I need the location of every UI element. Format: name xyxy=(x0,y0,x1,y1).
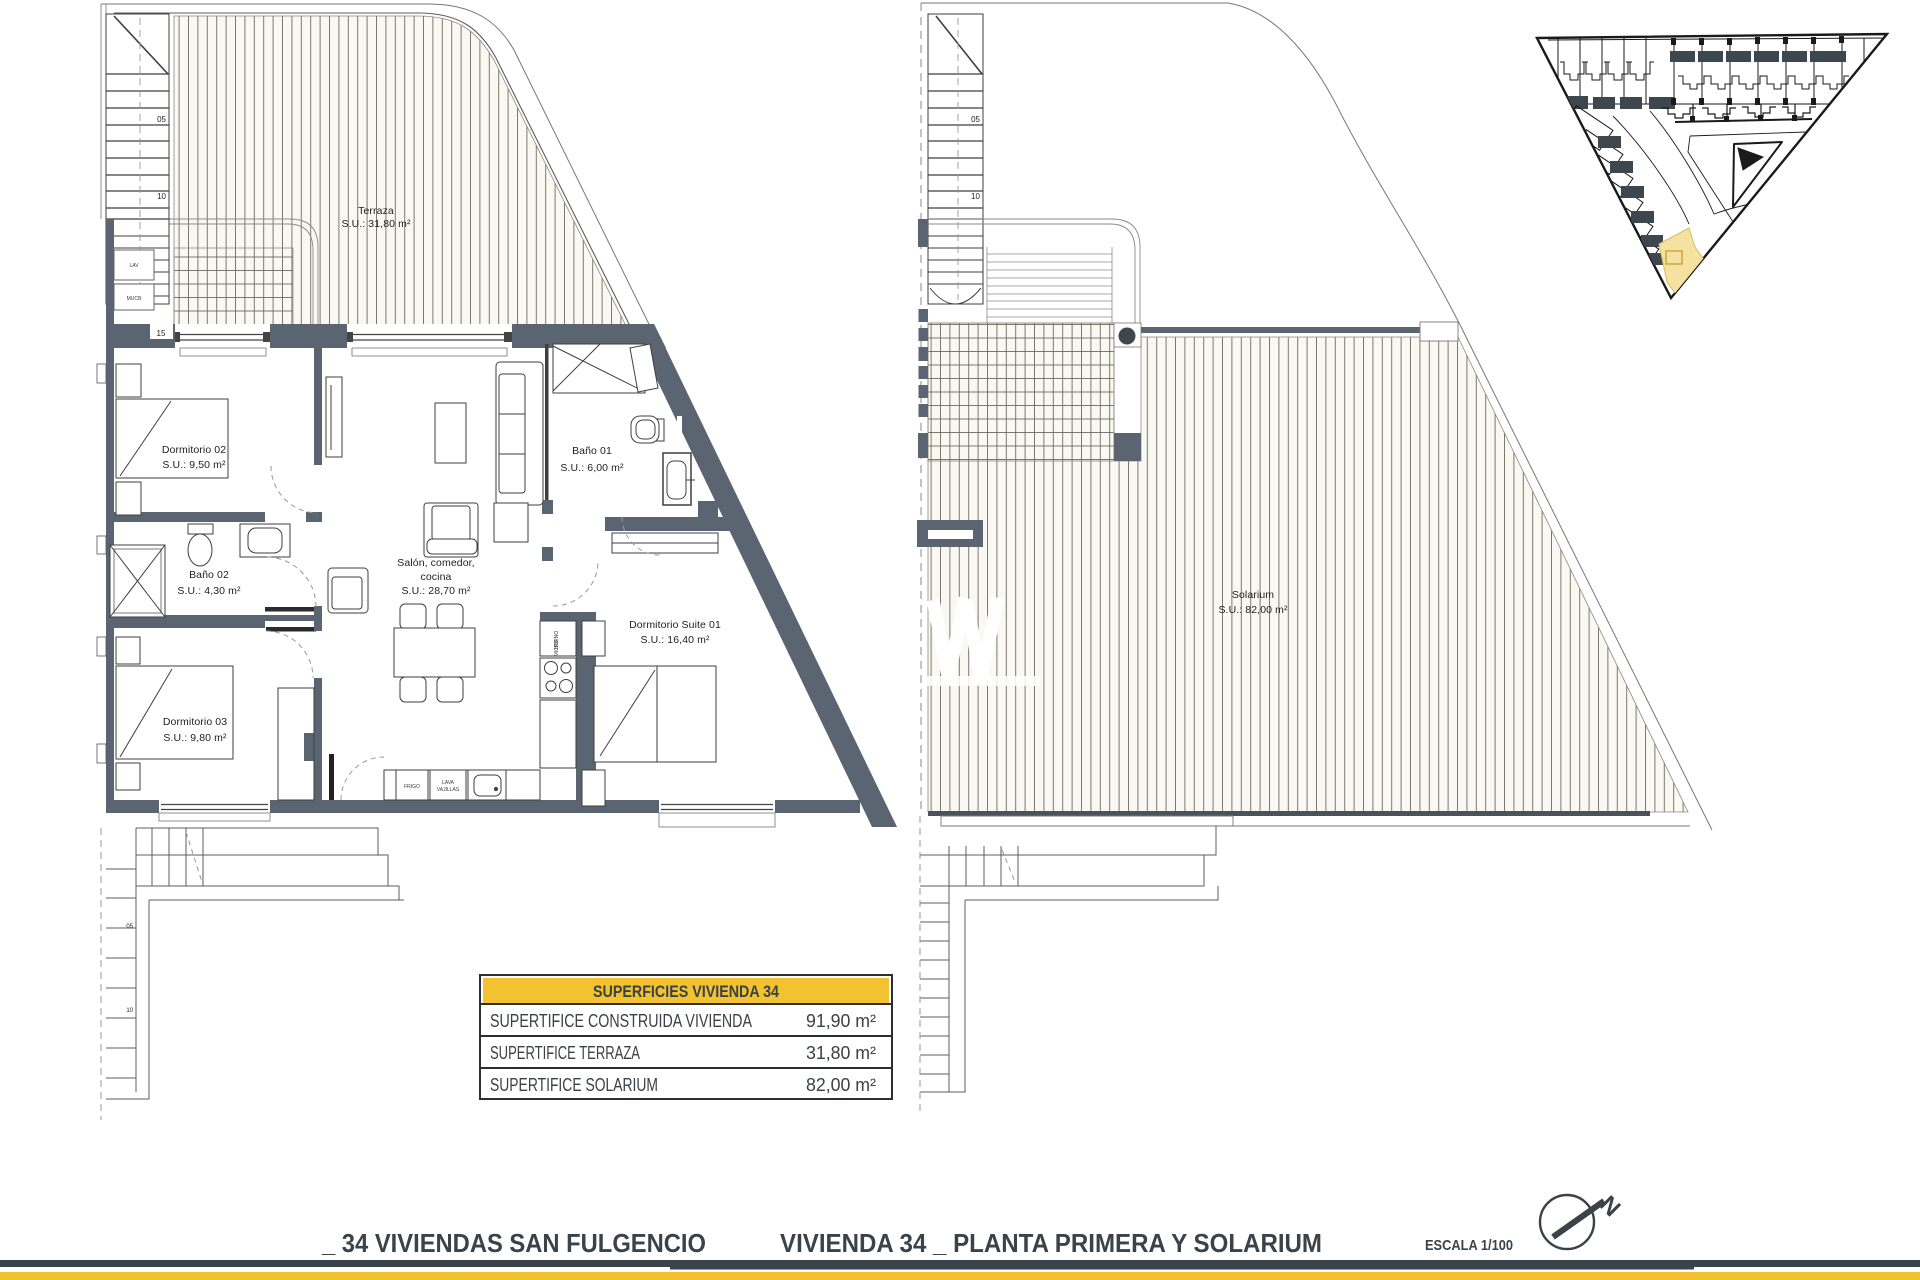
svg-text:S.U.: 4,30 m²: S.U.: 4,30 m² xyxy=(177,585,241,597)
svg-text:S.U.: 9,50 m²: S.U.: 9,50 m² xyxy=(162,459,226,471)
svg-text:91,90 m²: 91,90 m² xyxy=(806,1011,876,1031)
svg-text:S.U.: 6,00 m²: S.U.: 6,00 m² xyxy=(560,462,624,474)
svg-text:SUPERFICIES VIVIENDA 34: SUPERFICIES VIVIENDA 34 xyxy=(593,982,779,1001)
svg-text:LAVA: LAVA xyxy=(442,780,455,786)
svg-text:MICRO: MICRO xyxy=(554,640,560,657)
svg-text:Baño 01: Baño 01 xyxy=(572,445,612,457)
svg-text:05: 05 xyxy=(126,924,133,930)
svg-text:15: 15 xyxy=(157,329,166,338)
svg-text:82,00 m²: 82,00 m² xyxy=(806,1075,876,1095)
svg-text:S.U.: 31,80 m²: S.U.: 31,80 m² xyxy=(341,218,410,230)
svg-text:LAV: LAV xyxy=(129,263,139,269)
svg-text:cocina: cocina xyxy=(421,571,452,583)
svg-text:Terraza: Terraza xyxy=(358,205,394,217)
svg-text:Dormitorio 03: Dormitorio 03 xyxy=(163,716,227,728)
svg-text:SUPERTIFICE CONSTRUIDA VIVIEND: SUPERTIFICE CONSTRUIDA VIVIENDA xyxy=(490,1011,752,1031)
svg-text:Dormitorio Suite 01: Dormitorio Suite 01 xyxy=(629,619,721,631)
svg-text:VAJILLAS: VAJILLAS xyxy=(437,787,460,793)
svg-text:10: 10 xyxy=(157,192,166,201)
svg-text:ESCALA 1/100: ESCALA 1/100 xyxy=(1425,1237,1513,1254)
svg-text:S.U.: 28,70 m²: S.U.: 28,70 m² xyxy=(401,585,470,597)
svg-text:Salón, comedor,: Salón, comedor, xyxy=(397,557,474,569)
svg-text:S.U.: 9,80 m²: S.U.: 9,80 m² xyxy=(163,732,227,744)
svg-text:Dormitorio 02: Dormitorio 02 xyxy=(162,444,226,456)
svg-text:10: 10 xyxy=(971,192,980,201)
svg-text:S.U.: 16,40 m²: S.U.: 16,40 m² xyxy=(640,634,709,646)
svg-text:FRIGO: FRIGO xyxy=(404,784,420,790)
svg-text:05: 05 xyxy=(157,115,166,124)
svg-text:VIVIENDA 34 _ PLANTA PRIMERA Y: VIVIENDA 34 _ PLANTA PRIMERA Y SOLARIUM xyxy=(780,1228,1322,1258)
svg-text:MUCB: MUCB xyxy=(127,296,142,302)
svg-text:_ 34 VIVIENDAS SAN FULGENCIO: _ 34 VIVIENDAS SAN FULGENCIO xyxy=(321,1228,706,1258)
svg-text:SUPERTIFICE SOLARIUM: SUPERTIFICE SOLARIUM xyxy=(490,1075,658,1095)
svg-text:31,80 m²: 31,80 m² xyxy=(806,1043,876,1063)
svg-text:Solarium: Solarium xyxy=(1232,589,1274,601)
svg-text:05: 05 xyxy=(971,115,980,124)
svg-text:S.U.: 82,00 m²: S.U.: 82,00 m² xyxy=(1218,604,1287,616)
svg-text:10: 10 xyxy=(126,1008,133,1014)
svg-text:Baño 02: Baño 02 xyxy=(189,569,229,581)
svg-text:SUPERTIFICE TERRAZA: SUPERTIFICE TERRAZA xyxy=(490,1043,640,1063)
